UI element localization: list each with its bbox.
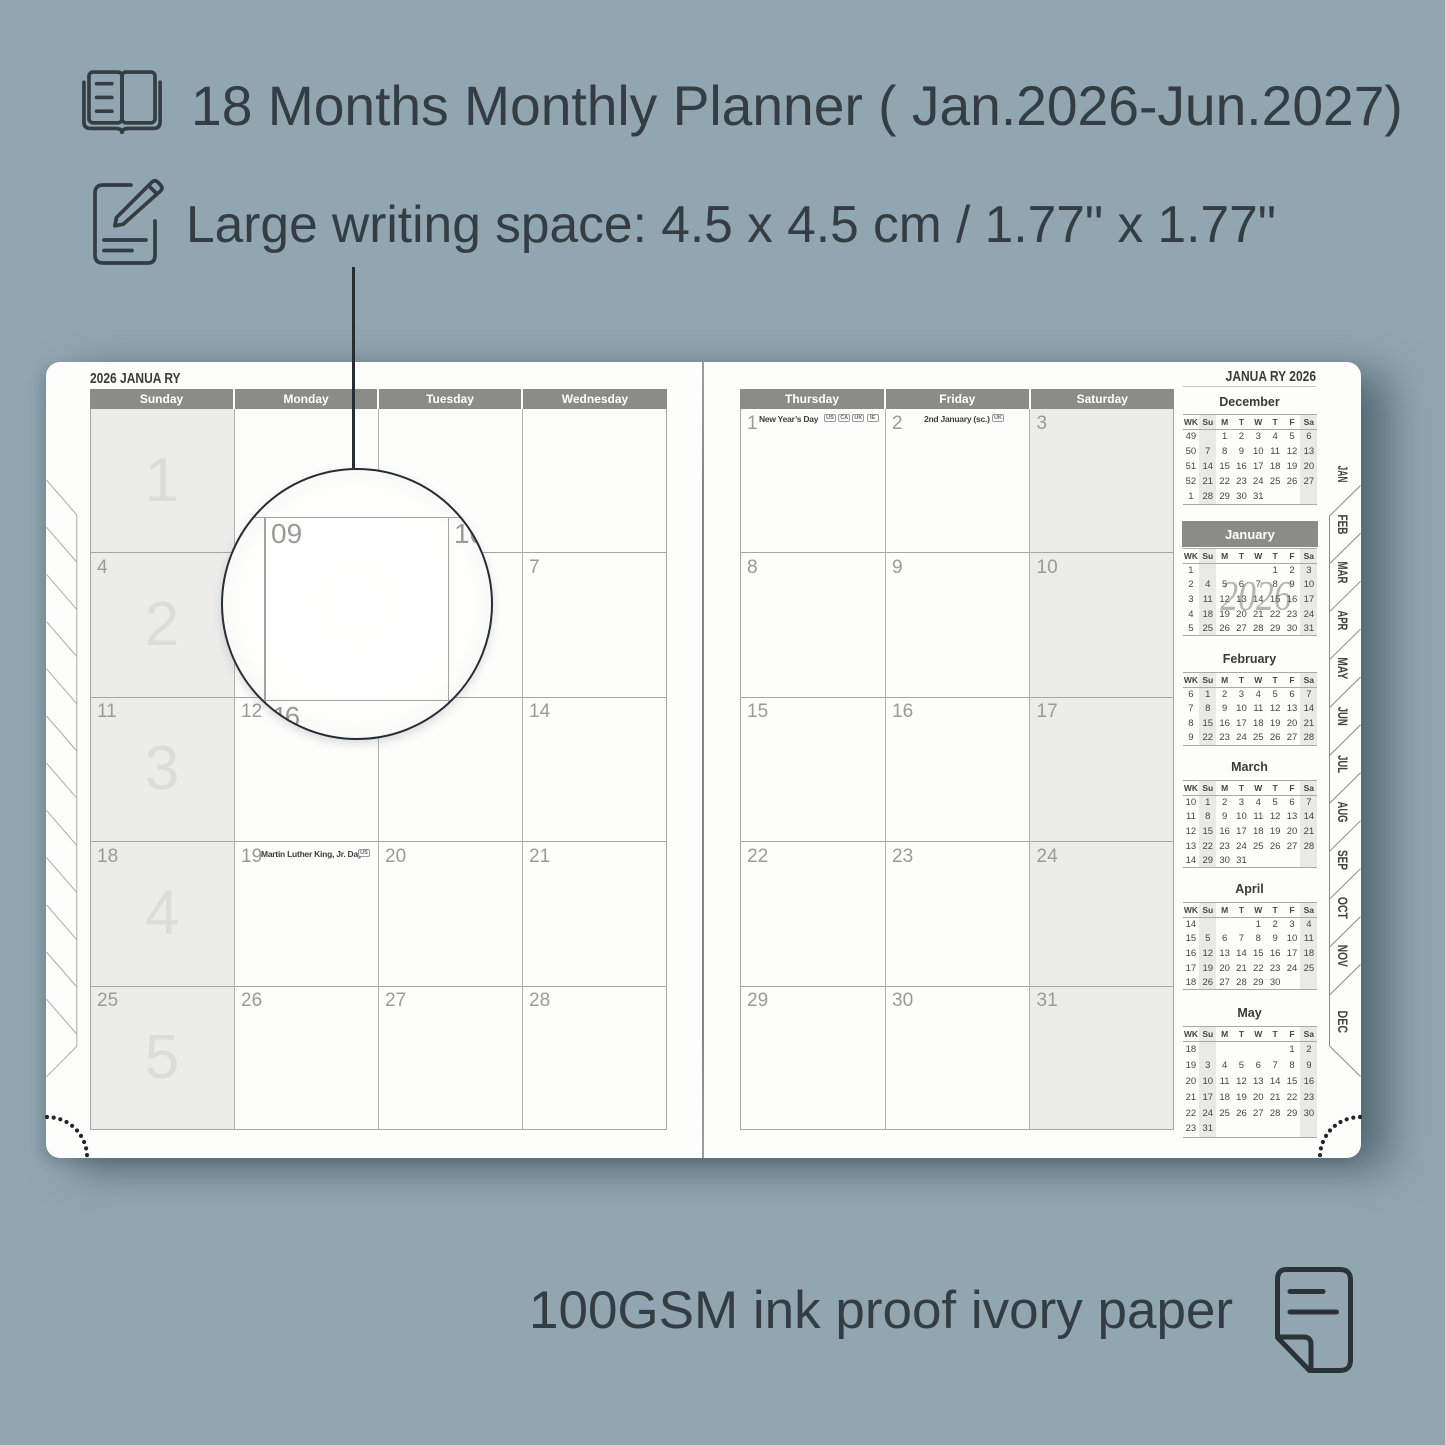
svg-text:JUL: JUL (1335, 755, 1351, 773)
svg-text:MAY: MAY (1335, 657, 1351, 679)
svg-text:APR: APR (1335, 610, 1351, 630)
svg-text:DEC: DEC (1335, 1011, 1351, 1034)
svg-text:AUG: AUG (1335, 802, 1351, 823)
svg-text:JUN: JUN (1335, 707, 1351, 726)
svg-text:MAR: MAR (1335, 562, 1351, 584)
svg-text:OCT: OCT (1335, 897, 1351, 919)
svg-text:FEB: FEB (1335, 515, 1351, 535)
svg-text:NOV: NOV (1335, 945, 1351, 967)
svg-text:JAN: JAN (1335, 466, 1351, 483)
svg-text:SEP: SEP (1335, 850, 1351, 870)
